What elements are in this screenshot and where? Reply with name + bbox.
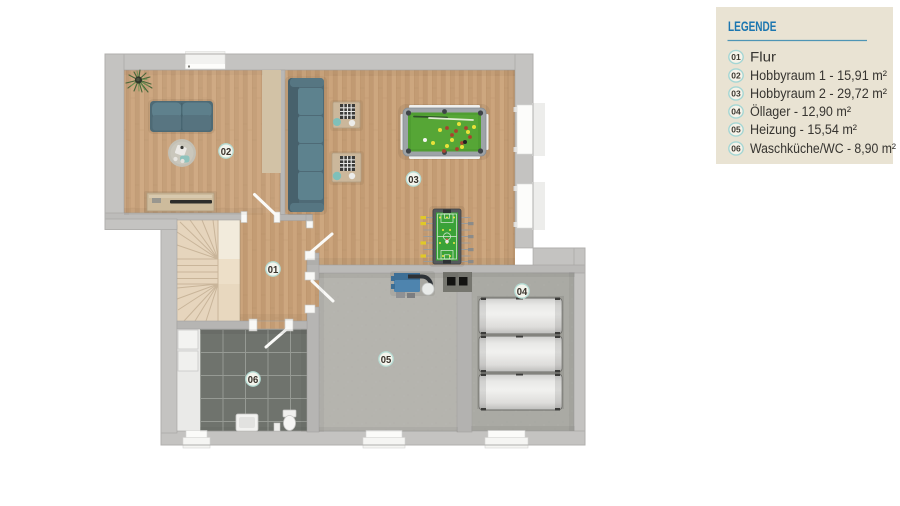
svg-text:02: 02 — [731, 71, 741, 81]
svg-text:Hobbyraum 2 - 29,72 m²: Hobbyraum 2 - 29,72 m² — [750, 86, 887, 101]
svg-text:Hobbyraum 1 - 15,91 m²: Hobbyraum 1 - 15,91 m² — [750, 68, 887, 83]
svg-text:Öllager - 12,90 m²: Öllager - 12,90 m² — [750, 104, 851, 119]
svg-text:Flur: Flur — [750, 50, 777, 65]
svg-text:05: 05 — [381, 354, 392, 366]
svg-text:04: 04 — [731, 107, 741, 117]
svg-text:03: 03 — [731, 89, 741, 99]
svg-text:Waschküche/WC - 8,90 m²: Waschküche/WC - 8,90 m² — [750, 141, 896, 156]
svg-text:04: 04 — [517, 286, 528, 298]
svg-text:02: 02 — [221, 146, 232, 158]
svg-text:06: 06 — [731, 144, 741, 154]
svg-text:06: 06 — [248, 374, 259, 386]
svg-text:01: 01 — [731, 52, 741, 62]
svg-text:03: 03 — [408, 174, 419, 186]
svg-text:01: 01 — [268, 264, 279, 276]
svg-text:05: 05 — [731, 125, 741, 135]
svg-text:LEGENDE: LEGENDE — [728, 18, 777, 34]
svg-text:Heizung - 15,54 m²: Heizung - 15,54 m² — [750, 122, 857, 137]
